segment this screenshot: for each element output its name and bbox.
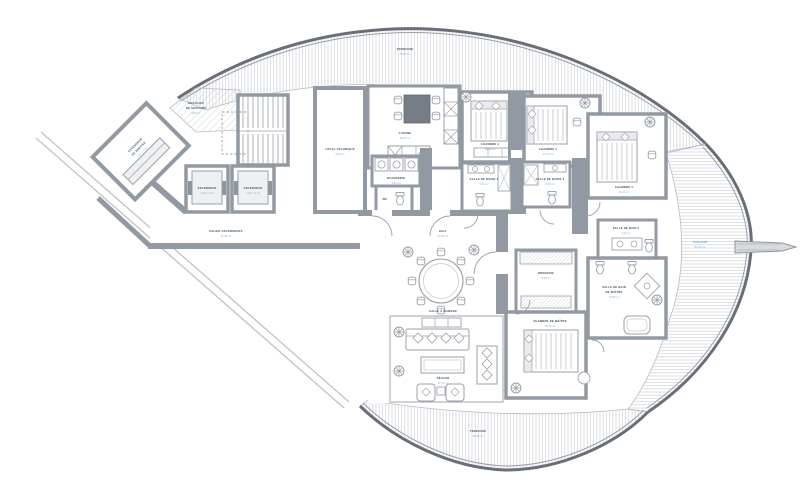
room-dims: 32.50 m² (438, 234, 449, 238)
armchair-icon (417, 384, 435, 401)
plant-icon (394, 327, 404, 337)
room-palier: PALIER ASCENSEURS 12.40 m² (148, 214, 374, 249)
terrace-label: TERRASSE (397, 47, 414, 51)
room-dims: 5.40 m² (479, 182, 488, 186)
prow-spike (735, 241, 796, 253)
room-label: SALLE DE BAINS 3 (536, 177, 565, 181)
bed-icon (524, 330, 578, 372)
bathtub-icon (624, 316, 650, 334)
washer-dryer-icons (375, 158, 418, 171)
terrace-label: TERRASSE (693, 240, 708, 244)
room-chambre-2: CHAMBRE 2 19.40 m² (588, 114, 666, 198)
chaise-icon (477, 346, 497, 384)
room-label: SALLE DE BAIN 2 (613, 226, 640, 230)
bedroom-chair-icon (648, 151, 656, 159)
room-dims: 9.80 m² (335, 152, 344, 156)
room-dims: 8.90 m² (541, 276, 550, 280)
room-dims: 12.40 m² (221, 234, 232, 238)
toilet-icon (645, 240, 653, 253)
room-label: PALIER ASCENSEURS (209, 229, 242, 233)
terrace-bottom (360, 400, 648, 470)
room-chambre-maitre: CHAMBRE DE MAÎTRE 28.60 m² (506, 312, 590, 398)
room-label: ASCENSEUR (243, 186, 262, 190)
floor-plan: ASCENSEUR 1.60 × 2.10 ASCENSEUR 1.60 × 2… (0, 0, 800, 500)
elevator-a: ASCENSEUR 1.60 × 2.10 (186, 166, 228, 212)
room-dims: 1.60 × 2.10 (200, 191, 214, 195)
room-dressing: DRESSING 8.90 m² (516, 250, 576, 312)
toilet-icon (628, 262, 636, 275)
service-link-wall (152, 182, 186, 212)
palier-south-wall (148, 243, 374, 249)
room-dims: 28.60 m² (545, 324, 556, 328)
room-label-line1: ESCALIER (188, 101, 204, 105)
terrace-bottom-deck (360, 400, 648, 470)
room-dims: 16.80 m² (485, 147, 496, 151)
room-buanderie: BUANDERIE 4.20 m² (372, 156, 420, 186)
bed-icon (471, 101, 507, 141)
bed-icon (527, 106, 567, 144)
room-sdb-maitre: SALLE DE BAIN DE MAÎTRE 14.50 m² (588, 258, 666, 338)
toilet-icon (476, 194, 484, 207)
room-dims: 1.60 × 2.10 (246, 191, 260, 195)
room-sdb-4: SALLE DE BAINS 4 5.40 m² (462, 163, 512, 211)
room-dims: 5.60 m² (545, 182, 554, 186)
plant-icon (461, 92, 471, 102)
room-wc: WC (376, 186, 412, 212)
room-dims: 14.50 m² (609, 295, 620, 299)
side-table-icon (437, 387, 445, 395)
room-sejour: SÉJOUR 42.70 m² (390, 316, 503, 402)
room-label: WC (383, 197, 388, 201)
bedroom-chair-icon (573, 118, 581, 126)
plant-icon (645, 117, 655, 127)
kitchen-table-icon (404, 95, 430, 123)
room-dims: 17.20 m² (543, 152, 554, 156)
room-sdb-2: SALLE DE BAIN 2 6.20 m² (598, 220, 656, 258)
terrace-dims: 45.80 m² (400, 52, 411, 56)
plant-icon (394, 366, 404, 376)
plant-icon (580, 98, 590, 108)
room-local-technique: LOCAL TECHNIQUE 9.80 m² (315, 88, 365, 212)
bed-icon (597, 132, 637, 182)
room-label: LOCAL TECHNIQUE (325, 147, 355, 151)
room-label: CHAMBRE 3 (539, 147, 557, 151)
shaft-wall (572, 158, 588, 234)
room-dims: 42.70 m² (438, 381, 449, 385)
room-label: HALL (439, 229, 447, 233)
toilet-icon (396, 193, 404, 206)
vanity-icon (612, 238, 642, 250)
room-label: CHAMBRE 4 (481, 142, 499, 146)
room-sdb-3: SALLE DE BAINS 3 5.60 m² (522, 162, 570, 207)
room-dims: 8.50 m² (191, 111, 200, 115)
vanity-icon (468, 165, 494, 173)
room-label: CHAMBRE 2 (615, 185, 633, 189)
room-label-line1: SALLE DE BAIN (602, 285, 626, 289)
room-label: SALLE DE BAINS 4 (470, 177, 499, 181)
plant-icon (652, 295, 662, 305)
room-label: BUANDERIE (387, 176, 405, 180)
shaft-wall (420, 148, 432, 212)
room-label: CUISINE (399, 131, 412, 135)
room-label: DRESSING (538, 271, 554, 275)
sofa-icon (406, 329, 469, 350)
coffee-table-icon (421, 357, 464, 373)
room-dims: 18.60 m² (400, 136, 411, 140)
toilet-icon (548, 192, 556, 205)
room-label: ASCENSEUR (197, 186, 216, 190)
tv-console-icon (422, 318, 461, 327)
room-label-line2: DE SECOURS (186, 106, 206, 110)
terrace-dims: 38.60 m² (473, 434, 484, 438)
ottoman-icon (578, 372, 590, 384)
floor-plan-page: ASCENSEUR 1.60 × 2.10 ASCENSEUR 1.60 × 2… (0, 0, 800, 500)
plant-icon (469, 245, 479, 255)
elevator-b: ASCENSEUR 1.60 × 2.10 (232, 166, 274, 212)
room-dims: 19.40 m² (619, 190, 630, 194)
terrace-label: TERRASSE (470, 429, 487, 433)
armchair-icon (446, 384, 464, 401)
plant-icon (403, 247, 413, 257)
wardrobe-icon (520, 252, 572, 264)
terrace-dims: 62.40 m² (695, 245, 706, 249)
plant-icon (511, 383, 521, 393)
toilet-icon (596, 262, 604, 275)
room-dims: 6.20 m² (621, 231, 630, 235)
room-dims: 4.20 m² (391, 181, 400, 185)
